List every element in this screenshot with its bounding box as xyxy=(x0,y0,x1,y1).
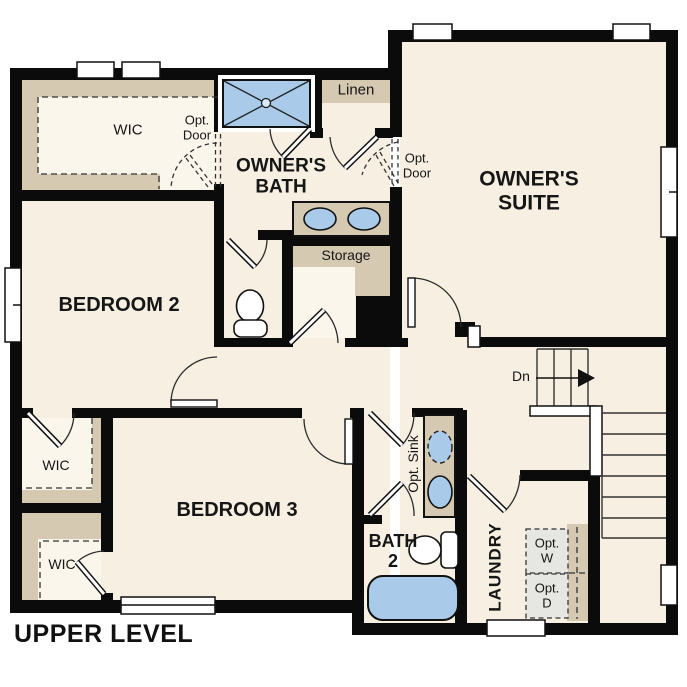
window xyxy=(122,62,160,78)
wall-bath-left-stub xyxy=(214,184,224,201)
owners-bath-line1: OWNER'S xyxy=(236,156,326,177)
opt-washer-line2: W xyxy=(535,551,560,566)
floor-plan: WIC Opt. Door OWNER'S BATH Linen OWNER'S… xyxy=(0,0,687,687)
opt-washer-line1: Opt. xyxy=(535,536,560,551)
opt-door-left-line2: Door xyxy=(183,128,211,143)
wic-bottom-shelf-left xyxy=(22,539,38,600)
sink-icon xyxy=(428,476,452,508)
toilet-icon xyxy=(234,290,267,337)
stair-rail-lower xyxy=(590,406,602,476)
opt-sink-label: Opt. Sink xyxy=(406,435,422,493)
wall-bedroom3-left-upper xyxy=(101,408,113,552)
opt-door-right-label: Opt. Door xyxy=(403,151,431,180)
opt-dryer-line2: D xyxy=(535,596,560,611)
wall-laundry-right xyxy=(588,470,600,623)
opening-jamb xyxy=(468,326,480,347)
opt-dryer-line1: Opt. xyxy=(535,581,560,596)
bedroom2-door-leaf xyxy=(171,400,217,407)
owners-bath-line2: BATH xyxy=(236,177,326,198)
wall-bath2-left xyxy=(352,408,364,600)
wall-suite-left-upper xyxy=(390,42,402,137)
wall-wic1-bottom xyxy=(10,190,222,201)
stairs-down-label: Dn xyxy=(512,369,530,385)
bath2-line2: 2 xyxy=(369,551,418,571)
laundry-label: LAUNDRY xyxy=(485,522,504,611)
wic-middle-shelf-bottom xyxy=(22,490,101,503)
double-vanity-icon xyxy=(293,202,390,236)
opt-door-right-line1: Opt. xyxy=(403,151,431,166)
wic-top-left-label: WIC xyxy=(113,123,142,140)
bath2-vanity-icon xyxy=(424,415,455,517)
owners-suite-line2: SUITE xyxy=(479,191,579,215)
storage-label: Storage xyxy=(321,248,370,264)
wic-bottom-shelf-top xyxy=(22,513,101,539)
window xyxy=(661,565,677,605)
window xyxy=(487,620,545,636)
wall-wc-bottom xyxy=(214,338,293,347)
owners-bath-label: OWNER'S BATH xyxy=(236,156,326,199)
opt-door-left-line1: Opt. xyxy=(183,113,211,128)
floor-plan-drawing xyxy=(0,0,687,687)
chase xyxy=(356,296,402,346)
wall-suite-bottom xyxy=(470,337,666,347)
owners-suite-line1: OWNER'S xyxy=(479,167,579,191)
owners-suite-door-leaf xyxy=(408,278,415,327)
opt-door-right-line2: Door xyxy=(403,166,431,181)
window xyxy=(613,24,650,40)
wall-bath2-stub xyxy=(364,515,382,524)
plan-title: UPPER LEVEL xyxy=(14,620,193,649)
wall-top-left xyxy=(10,68,400,80)
wic-middle-label: WIC xyxy=(42,458,69,474)
wic-bottom-label: WIC xyxy=(48,557,75,573)
bath2-line1: BATH xyxy=(369,531,418,551)
stair-rail-landing xyxy=(530,406,596,416)
bedroom3-label: BEDROOM 3 xyxy=(176,499,297,521)
bath2-label: BATH 2 xyxy=(369,531,418,571)
linen-label: Linen xyxy=(338,83,375,100)
opt-dryer-label: Opt. D xyxy=(535,581,560,610)
wic-top-left-shelf-bottom xyxy=(38,174,160,190)
bedroom3-door-leaf xyxy=(345,419,353,464)
wall-right xyxy=(666,30,678,635)
opt-door-left-label: Opt. Door xyxy=(183,113,211,142)
owners-suite-label: OWNER'S SUITE xyxy=(479,167,579,214)
optional-sink-icon xyxy=(428,431,452,463)
bedroom2-label: BEDROOM 2 xyxy=(58,294,179,316)
window xyxy=(77,62,114,78)
wall-wic-divider xyxy=(10,503,113,513)
wall-bedroom2-right xyxy=(214,201,224,347)
window xyxy=(413,24,452,40)
bathtub-icon xyxy=(368,576,458,620)
wall-storage-top xyxy=(282,236,402,246)
shower-icon xyxy=(223,80,310,127)
opt-washer-label: Opt. W xyxy=(535,536,560,565)
wall-wc-storage xyxy=(282,230,293,347)
